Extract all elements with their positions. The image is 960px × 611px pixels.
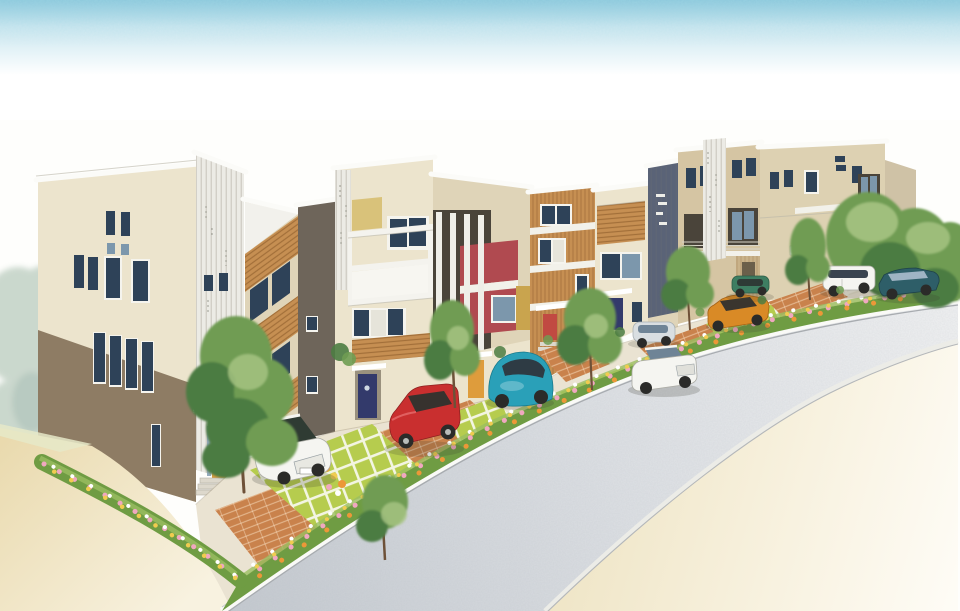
grille [676,364,695,376]
car-green-compact [726,276,774,302]
glass [638,325,668,333]
license-plate [300,468,313,474]
car-silver-kei [628,322,680,349]
townhouse-streetscape-rendering [0,0,960,611]
recessed-balcony-2 [726,208,760,256]
sky-speckle [0,0,960,46]
louver-panel [703,138,726,262]
front-door-navy [358,374,377,418]
glass [737,279,763,286]
illustration-canvas [0,0,960,611]
glass [828,270,868,278]
